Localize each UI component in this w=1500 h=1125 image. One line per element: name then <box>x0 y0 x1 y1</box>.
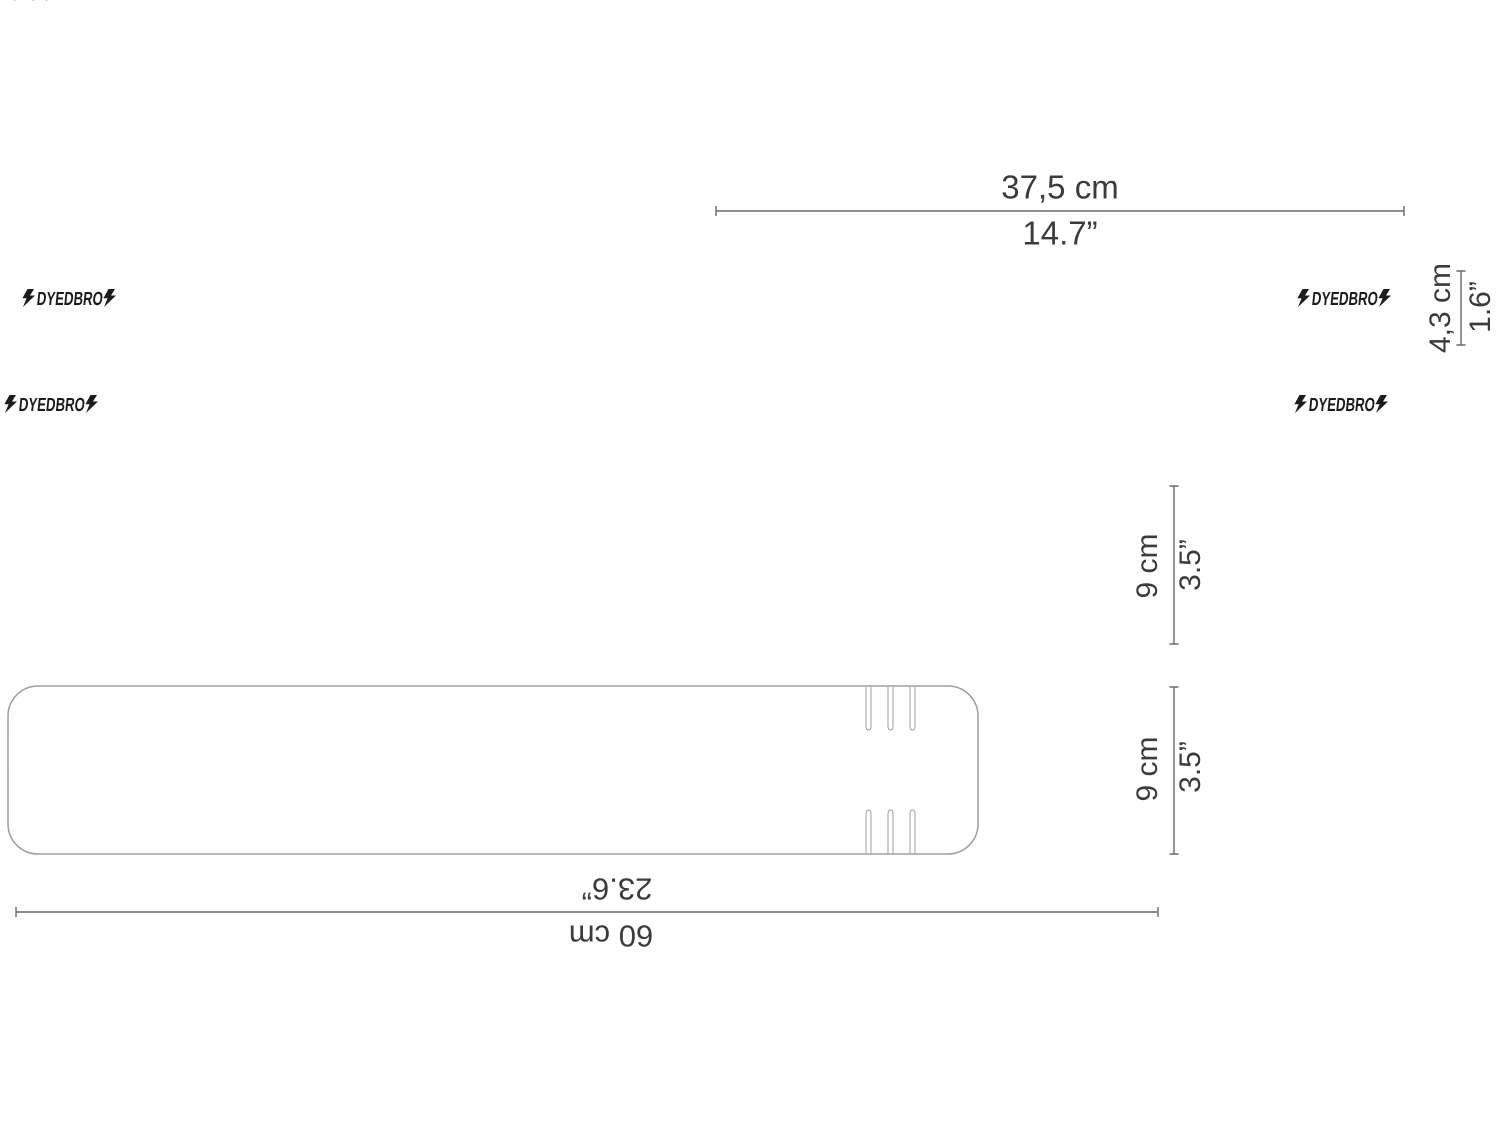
brand-logo-text: DYEDBRO <box>1311 289 1379 310</box>
kit-diagram-canvas: DYEDBRO DYEDBRO DYEDBRO DYEDBRO DYEDBRO.… <box>0 0 1500 1125</box>
dyedbro-logo: DYEDBRO <box>4 395 98 416</box>
dyedbro-protection-kit-diagram: DYEDBRO DYEDBRO DYEDBRO DYEDBRO DYEDBRO.… <box>0 0 1500 1125</box>
lightning-bolt-icon <box>85 395 98 413</box>
brand-logo-text: DYEDBRO <box>1308 395 1376 416</box>
dyedbro-logo: DYEDBRO <box>1297 289 1391 310</box>
clear-protector-piece <box>8 686 978 854</box>
dim-label-top-inches: 14.7” <box>1022 217 1097 250</box>
dim-label-length-cm: 60 cm <box>569 921 653 952</box>
dim-line-bottom-length <box>16 907 1158 917</box>
relief-slit <box>910 687 915 730</box>
dyedbro-logo: DYEDBRO <box>1294 395 1388 416</box>
dim-label-bottom-piece-cm: 9 cm <box>1133 736 1163 801</box>
relief-slit <box>910 810 915 853</box>
dim-label-strip-cm: 4,3 cm <box>1426 263 1456 353</box>
dim-label-length-inches: 23.6” <box>582 874 653 905</box>
dim-label-bottom-piece-inches: 3.5” <box>1176 741 1206 793</box>
brand-logo-text: DYEDBRO <box>18 395 86 416</box>
lightning-bolt-icon <box>1375 395 1388 413</box>
relief-slit <box>866 687 871 730</box>
dim-label-frame-cm: 9 cm <box>1133 533 1163 598</box>
lightning-bolt-icon <box>4 395 17 413</box>
dim-label-strip-inches: 1.6” <box>1466 281 1496 333</box>
relief-slit <box>866 810 871 853</box>
brand-logo-text: DYEDBRO <box>36 289 104 310</box>
lightning-bolt-icon <box>103 289 116 307</box>
dim-label-top-cm: 37,5 cm <box>1001 171 1118 204</box>
website-url-text: DYEDBRO.COM <box>0 0 70 7</box>
relief-slit <box>888 687 893 730</box>
dim-label-frame-inches: 3.5” <box>1176 539 1206 591</box>
lightning-bolt-icon <box>1297 289 1310 307</box>
lightning-bolt-icon <box>1378 289 1391 307</box>
lightning-bolt-icon <box>22 289 35 307</box>
dyedbro-logo: DYEDBRO <box>22 289 116 310</box>
lightning-bolt-icon <box>1294 395 1307 413</box>
clear-protector-outline <box>8 686 978 854</box>
relief-slit <box>888 810 893 853</box>
